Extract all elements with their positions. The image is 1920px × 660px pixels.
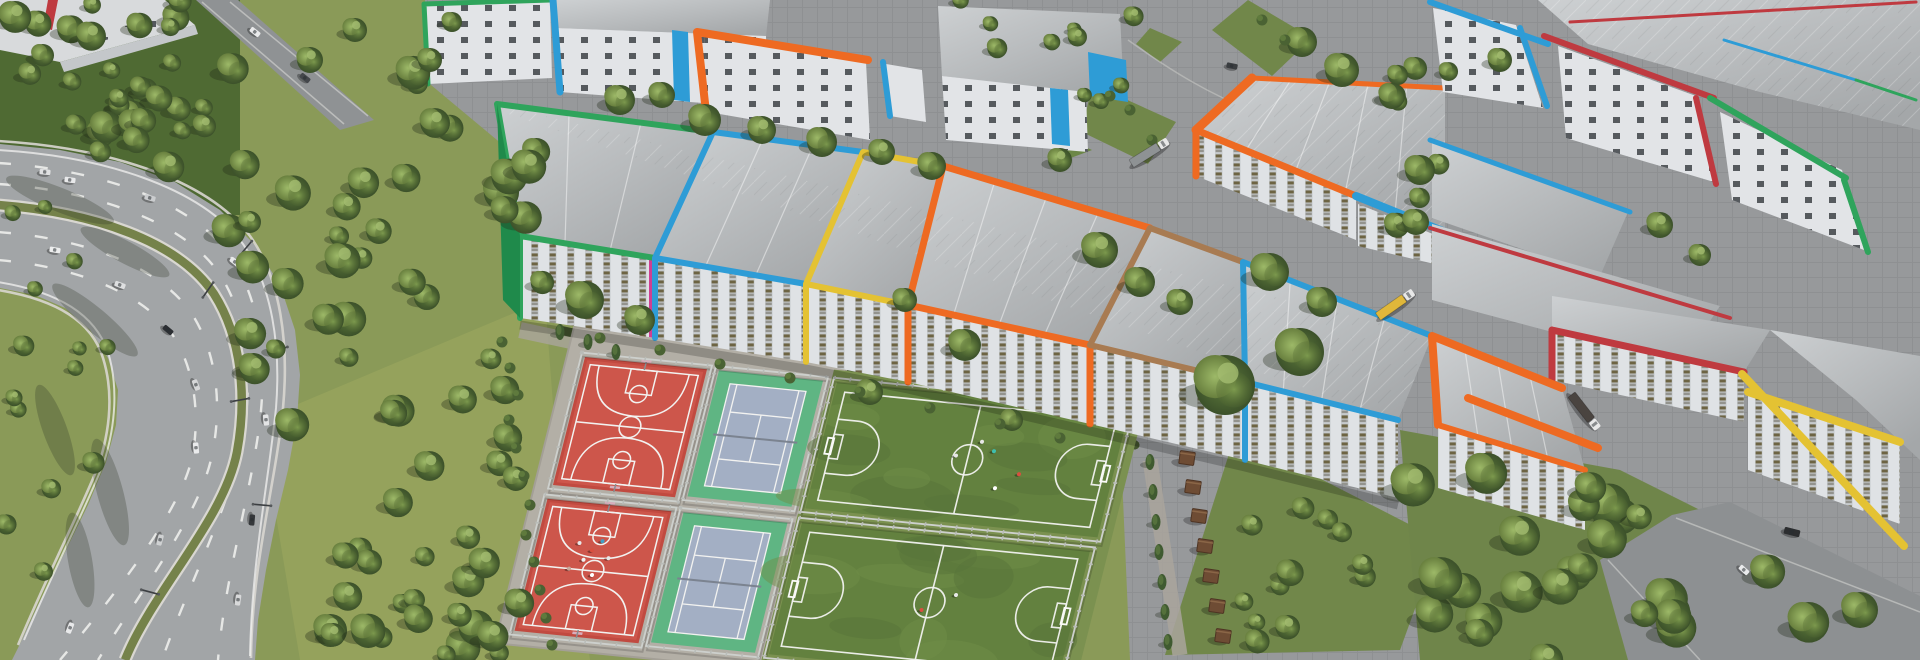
blue-pilaster — [1050, 88, 1070, 146]
aerial-industrial-park-render — [0, 0, 1920, 660]
tree — [0, 1, 31, 33]
aerial-screenshot — [0, 0, 1920, 660]
blue-pilaster — [672, 30, 690, 102]
windows — [424, 0, 552, 84]
